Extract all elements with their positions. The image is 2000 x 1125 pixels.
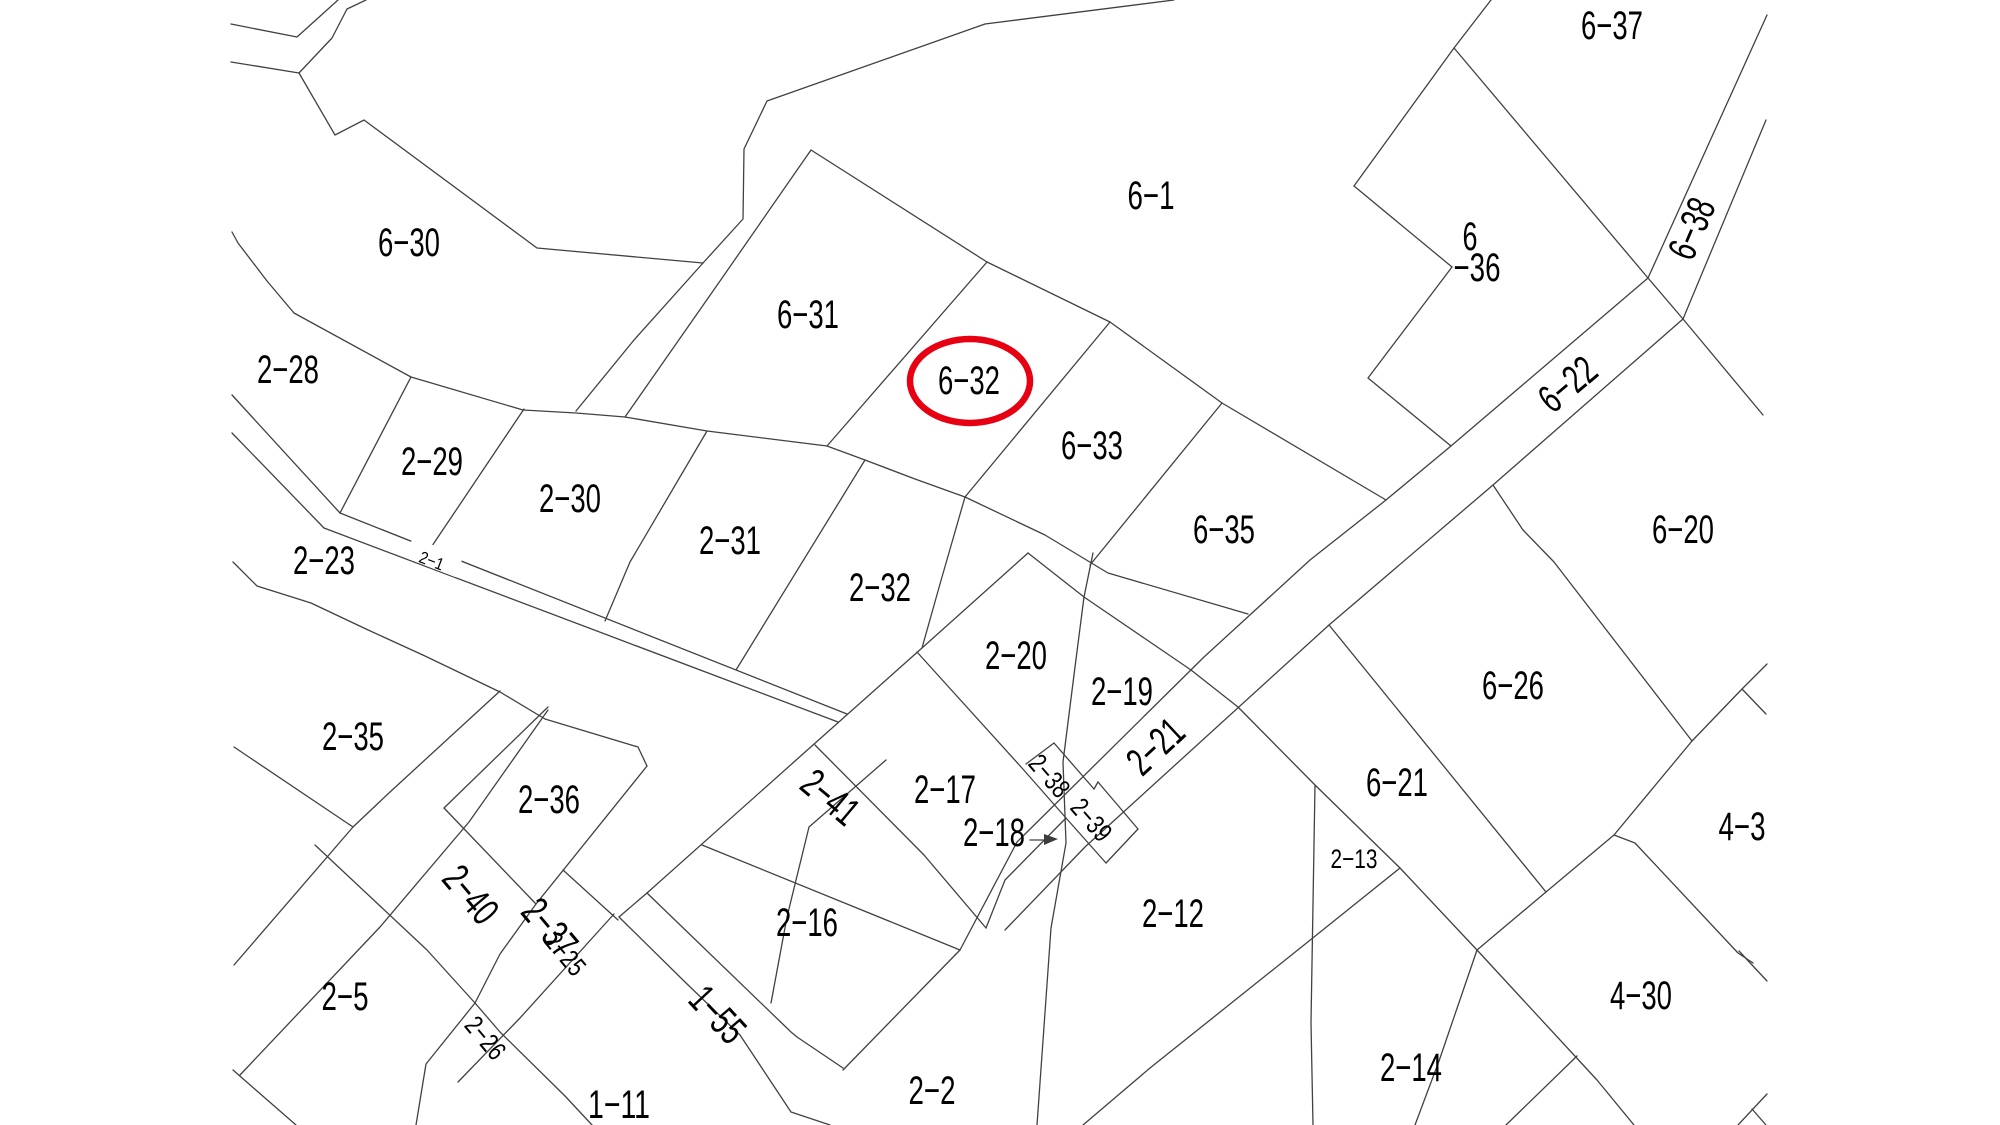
svg-text:2−18: 2−18 (963, 811, 1025, 855)
svg-text:6−32: 6−32 (938, 359, 1000, 403)
svg-text:6−37: 6−37 (1581, 4, 1643, 48)
svg-text:2−16: 2−16 (776, 901, 838, 945)
svg-text:2−35: 2−35 (322, 715, 384, 759)
svg-text:6−31: 6−31 (777, 293, 839, 337)
svg-text:2−17: 2−17 (914, 768, 976, 812)
svg-text:2−14: 2−14 (1380, 1046, 1442, 1090)
svg-text:6−20: 6−20 (1652, 508, 1714, 552)
svg-text:2−19: 2−19 (1091, 670, 1153, 714)
svg-text:6−33: 6−33 (1061, 424, 1123, 468)
svg-text:6−21: 6−21 (1366, 761, 1428, 805)
svg-text:6−35: 6−35 (1193, 508, 1255, 552)
svg-text:2−28: 2−28 (257, 348, 319, 392)
svg-text:6−26: 6−26 (1482, 664, 1544, 708)
svg-text:2−29: 2−29 (401, 440, 463, 484)
svg-text:6−30: 6−30 (378, 221, 440, 265)
svg-text:2−12: 2−12 (1142, 892, 1204, 936)
svg-text:2−23: 2−23 (293, 539, 355, 583)
svg-text:2−2: 2−2 (909, 1069, 956, 1113)
svg-text:−36: −36 (1454, 246, 1501, 290)
svg-text:2−32: 2−32 (849, 566, 911, 610)
svg-text:1−11: 1−11 (588, 1083, 650, 1125)
svg-text:2−13: 2−13 (1331, 844, 1378, 874)
svg-text:6−1: 6−1 (1128, 174, 1175, 218)
svg-text:2−20: 2−20 (985, 634, 1047, 678)
svg-text:4−3: 4−3 (1719, 805, 1766, 849)
svg-text:2−36: 2−36 (518, 778, 580, 822)
svg-text:2−31: 2−31 (699, 519, 761, 563)
svg-text:4−30: 4−30 (1610, 974, 1672, 1018)
svg-text:2−5: 2−5 (322, 975, 369, 1019)
svg-text:2−30: 2−30 (539, 477, 601, 521)
